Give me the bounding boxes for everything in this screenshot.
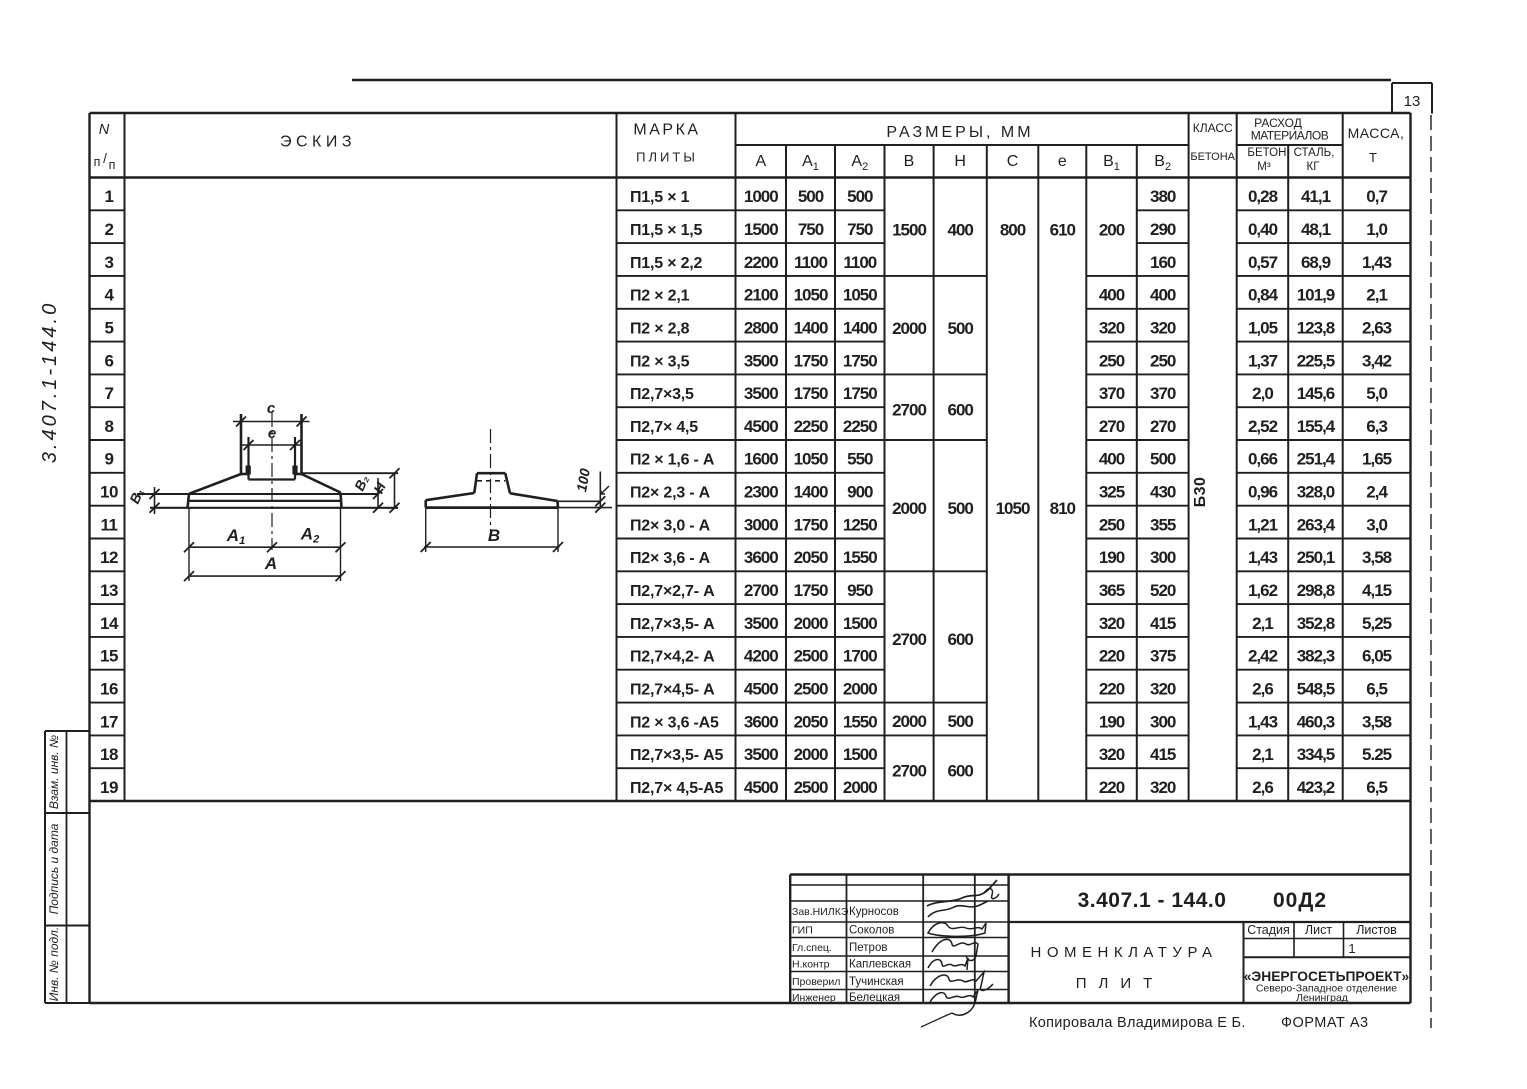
svg-text:2050: 2050 [794,712,828,731]
svg-text:П2× 3,0 - А: П2× 3,0 - А [630,517,711,534]
svg-text:СТАЛЬ,: СТАЛЬ, [1294,147,1335,159]
svg-text:1750: 1750 [794,384,828,403]
svg-text:1050: 1050 [794,286,828,305]
svg-text:Гл.спец.: Гл.спец. [792,942,832,954]
svg-text:П2 × 1,6 - А: П2 × 1,6 - А [630,452,715,469]
svg-text:1500: 1500 [843,745,877,764]
svg-text:В: В [904,153,915,170]
svg-text:Инв. № подл.: Инв. № подл. [47,927,61,1001]
svg-text:2,42: 2,42 [1248,647,1278,666]
svg-text:П2,7×4,5- А: П2,7×4,5- А [630,681,715,698]
svg-text:600: 600 [948,630,974,649]
svg-text:1400: 1400 [843,319,877,338]
svg-text:1050: 1050 [794,450,828,469]
svg-text:2100: 2100 [744,286,778,305]
svg-text:250: 250 [1099,351,1125,370]
svg-text:2,4: 2,4 [1366,483,1388,502]
svg-text:Взам. инв. №: Взам. инв. № [47,735,61,809]
svg-text:Петров: Петров [849,942,887,954]
svg-text:П2× 3,6 - А: П2× 3,6 - А [630,550,711,567]
svg-text:Проверил: Проверил [792,976,840,988]
svg-text:190: 190 [1099,712,1125,731]
svg-text:1,62: 1,62 [1248,581,1278,600]
svg-text:с: с [267,400,276,417]
svg-text:320: 320 [1099,319,1125,338]
svg-text:КЛАСС: КЛАСС [1193,121,1233,135]
svg-text:В1: В1 [1103,153,1120,173]
svg-text:1550: 1550 [843,548,877,567]
svg-text:Тучинская: Тучинская [849,976,904,988]
svg-text:3,58: 3,58 [1362,548,1392,567]
svg-text:п: п [94,155,101,169]
svg-text:4500: 4500 [744,679,778,698]
svg-text:1500: 1500 [744,220,778,239]
svg-text:Б30: Б30 [1192,477,1209,508]
svg-text:2250: 2250 [794,417,828,436]
svg-text:1,37: 1,37 [1248,351,1278,370]
svg-text:3,42: 3,42 [1362,351,1392,370]
svg-text:750: 750 [847,220,873,239]
svg-text:2500: 2500 [794,778,828,797]
svg-text:155,4: 155,4 [1297,417,1336,436]
svg-text:145,6: 145,6 [1297,384,1335,403]
svg-text:328,0: 328,0 [1297,483,1335,502]
svg-text:380: 380 [1150,187,1176,206]
svg-text:00Д2: 00Д2 [1273,889,1327,912]
svg-text:4200: 4200 [744,647,778,666]
svg-text:РАЗМЕРЫ, ММ: РАЗМЕРЫ, ММ [886,124,1033,141]
svg-text:200: 200 [1099,221,1125,240]
svg-text:810: 810 [1050,499,1076,518]
svg-text:6,5: 6,5 [1366,679,1387,698]
svg-text:300: 300 [1150,712,1176,731]
svg-text:270: 270 [1150,417,1176,436]
svg-text:375: 375 [1150,647,1176,666]
svg-text:2,1: 2,1 [1252,614,1273,633]
svg-text:2000: 2000 [892,499,926,518]
svg-text:БЕТОН,: БЕТОН, [1247,147,1289,159]
svg-text:400: 400 [1099,450,1125,469]
svg-text:10: 10 [100,483,118,502]
svg-text:В: В [488,526,500,545]
svg-text:2300: 2300 [744,483,778,502]
svg-text:355: 355 [1150,515,1176,534]
svg-text:2,0: 2,0 [1252,384,1273,403]
svg-text:2000: 2000 [892,712,926,731]
svg-text:500: 500 [948,712,974,731]
svg-text:Каплевская: Каплевская [849,959,911,971]
svg-text:100: 100 [573,467,593,493]
svg-text:НОМЕНКЛАТУРА: НОМЕНКЛАТУРА [1031,944,1218,961]
svg-text:1,05: 1,05 [1248,319,1278,338]
svg-text:1,43: 1,43 [1362,253,1392,272]
svg-text:400: 400 [1099,286,1125,305]
svg-text:Листов: Листов [1356,923,1397,937]
svg-text:П2 × 2,1: П2 × 2,1 [630,288,690,305]
svg-text:Лист: Лист [1305,923,1332,937]
svg-text:500: 500 [1150,450,1176,469]
svg-text:320: 320 [1150,778,1176,797]
svg-text:3600: 3600 [744,548,778,567]
svg-text:МАРКА: МАРКА [633,122,700,139]
svg-text:6,3: 6,3 [1366,417,1387,436]
svg-text:1000: 1000 [744,187,778,206]
svg-text:Подпись и дата: Подпись и дата [47,823,61,914]
svg-text:320: 320 [1099,614,1125,633]
svg-text:А1: А1 [226,526,245,547]
svg-text:1750: 1750 [843,351,877,370]
svg-text:15: 15 [100,647,118,666]
svg-text:Ленинград: Ленинград [1296,992,1348,1004]
svg-text:5: 5 [105,319,114,338]
svg-text:13: 13 [100,581,118,600]
svg-text:290: 290 [1150,220,1176,239]
svg-text:2000: 2000 [794,614,828,633]
svg-text:Курносов: Курносов [849,906,899,918]
svg-text:П1,5 × 1: П1,5 × 1 [630,189,690,206]
svg-text:1050: 1050 [843,286,877,305]
svg-text:А2: А2 [851,153,868,173]
svg-text:1: 1 [105,187,114,206]
svg-text:225,5: 225,5 [1297,351,1335,370]
svg-text:ЭСКИЗ: ЭСКИЗ [280,134,356,151]
svg-text:В₂: В₂ [351,473,372,494]
svg-text:250,1: 250,1 [1297,548,1335,567]
svg-text:Н: Н [954,153,966,170]
svg-text:1: 1 [1348,941,1355,956]
svg-text:520: 520 [1150,581,1176,600]
svg-text:123,8: 123,8 [1297,319,1335,338]
svg-text:1750: 1750 [794,515,828,534]
svg-text:П1,5 × 1,5: П1,5 × 1,5 [630,222,703,239]
svg-text:325: 325 [1099,483,1125,502]
svg-text:2,1: 2,1 [1252,745,1273,764]
svg-text:500: 500 [948,319,974,338]
svg-text:е: е [1058,153,1067,170]
svg-text:365: 365 [1099,581,1125,600]
svg-text:1050: 1050 [996,499,1030,518]
svg-text:2200: 2200 [744,253,778,272]
svg-text:3500: 3500 [744,614,778,633]
svg-text:0,57: 0,57 [1248,253,1278,272]
svg-text:П2,7×3,5: П2,7×3,5 [630,386,694,403]
svg-text:1750: 1750 [794,351,828,370]
svg-text:12: 12 [100,548,118,567]
svg-text:600: 600 [948,761,974,780]
svg-text:3.407.1 - 144.0: 3.407.1 - 144.0 [1078,889,1227,912]
svg-text:2700: 2700 [892,630,926,649]
svg-text:1100: 1100 [794,253,827,272]
svg-text:3.407.1-144.0: 3.407.1-144.0 [39,301,61,463]
svg-text:352,8: 352,8 [1297,614,1335,633]
svg-text:220: 220 [1099,647,1125,666]
svg-text:548,5: 548,5 [1297,679,1335,698]
svg-text:160: 160 [1150,253,1176,272]
svg-text:19: 19 [100,778,118,797]
svg-text:500: 500 [847,187,873,206]
svg-text:БЕТОНА: БЕТОНА [1190,151,1235,163]
svg-text:190: 190 [1099,548,1125,567]
svg-text:П2,7× 4,5-А5: П2,7× 4,5-А5 [630,780,723,797]
svg-text:220: 220 [1099,679,1125,698]
svg-text:610: 610 [1050,221,1076,240]
svg-text:П2,7×4,2- А: П2,7×4,2- А [630,649,715,666]
svg-text:600: 600 [948,401,974,420]
svg-text:251,4: 251,4 [1297,450,1336,469]
svg-text:Зав.НИЛКЭ: Зав.НИЛКЭ [792,906,849,918]
svg-text:С: С [1007,153,1019,170]
svg-text:430: 430 [1150,483,1176,502]
svg-text:А1: А1 [802,153,819,173]
svg-text:ПЛИТЫ: ПЛИТЫ [636,150,698,165]
svg-text:3,58: 3,58 [1362,712,1392,731]
svg-text:2,63: 2,63 [1362,319,1392,338]
svg-text:500: 500 [948,499,974,518]
svg-text:2700: 2700 [892,761,926,780]
svg-text:1,21: 1,21 [1248,515,1278,534]
svg-text:263,4: 263,4 [1297,515,1336,534]
svg-text:400: 400 [1150,286,1176,305]
svg-text:17: 17 [100,712,118,731]
svg-text:3: 3 [105,253,114,272]
svg-text:400: 400 [948,221,974,240]
svg-text:415: 415 [1150,614,1176,633]
svg-text:2000: 2000 [794,745,828,764]
svg-text:13: 13 [1404,93,1421,110]
svg-text:0,66: 0,66 [1248,450,1278,469]
svg-text:П2 × 2,8: П2 × 2,8 [630,321,690,338]
svg-text:370: 370 [1099,384,1125,403]
svg-text:П2× 2,3 - А: П2× 2,3 - А [630,485,711,502]
svg-text:3500: 3500 [744,745,778,764]
svg-text:1,43: 1,43 [1248,548,1278,567]
svg-text:900: 900 [847,483,873,502]
svg-text:4,15: 4,15 [1362,581,1392,600]
svg-text:П2 × 3,5: П2 × 3,5 [630,353,690,370]
svg-text:П1,5 × 2,2: П1,5 × 2,2 [630,255,703,272]
svg-text:0,84: 0,84 [1248,286,1279,305]
svg-text:П2,7×3,5- А: П2,7×3,5- А [630,616,715,633]
svg-text:П2,7×2,7- А: П2,7×2,7- А [630,583,715,600]
svg-text:6,5: 6,5 [1366,778,1387,797]
svg-text:5,0: 5,0 [1366,384,1387,403]
svg-text:В₁: В₁ [126,486,147,506]
svg-text:300: 300 [1150,548,1176,567]
svg-text:0,28: 0,28 [1248,187,1278,206]
svg-text:2000: 2000 [892,319,926,338]
svg-text:П2,7×3,5- А5: П2,7×3,5- А5 [630,747,723,764]
svg-text:1750: 1750 [843,384,877,403]
svg-text:А: А [755,153,766,170]
svg-text:2: 2 [105,220,114,239]
svg-text:0,40: 0,40 [1248,220,1278,239]
svg-text:П2 × 3,6 -А5: П2 × 3,6 -А5 [630,714,719,731]
svg-text:ФОРМАТ А3: ФОРМАТ А3 [1281,1015,1369,1031]
svg-text:370: 370 [1150,384,1176,403]
svg-text:6,05: 6,05 [1362,647,1392,666]
svg-text:/: / [103,151,107,166]
svg-text:1600: 1600 [744,450,778,469]
svg-text:460,3: 460,3 [1297,712,1335,731]
svg-text:3,0: 3,0 [1366,515,1387,534]
svg-text:2000: 2000 [843,778,877,797]
svg-text:950: 950 [847,581,873,600]
svg-text:5,25: 5,25 [1362,614,1392,633]
svg-text:1,0: 1,0 [1366,220,1387,239]
svg-text:2800: 2800 [744,319,778,338]
svg-text:1700: 1700 [843,647,877,666]
svg-text:270: 270 [1099,417,1125,436]
svg-text:Н.контр: Н.контр [792,959,830,971]
svg-text:2500: 2500 [794,679,828,698]
svg-text:2,6: 2,6 [1252,778,1273,797]
svg-text:1250: 1250 [843,515,877,534]
svg-text:0,7: 0,7 [1366,187,1387,206]
svg-text:2000: 2000 [843,679,877,698]
svg-text:2700: 2700 [744,581,778,600]
svg-text:ПЛИТ: ПЛИТ [1076,975,1165,992]
svg-text:1400: 1400 [794,319,828,338]
svg-text:423,2: 423,2 [1297,778,1335,797]
svg-text:МАТЕРИАЛОВ: МАТЕРИАЛОВ [1251,129,1329,143]
svg-text:КГ: КГ [1307,161,1321,173]
svg-text:1750: 1750 [794,581,828,600]
svg-text:1550: 1550 [843,712,877,731]
svg-text:1500: 1500 [892,221,926,240]
svg-text:101,9: 101,9 [1297,286,1335,305]
svg-text:2500: 2500 [794,647,828,666]
svg-text:0,96: 0,96 [1248,483,1278,502]
svg-text:Копировала Владимирова Е Б.: Копировала Владимирова Е Б. [1029,1015,1246,1031]
svg-text:5.25: 5.25 [1362,745,1392,764]
svg-text:3500: 3500 [744,351,778,370]
svg-text:МАССА,: МАССА, [1348,125,1405,141]
svg-text:9: 9 [105,450,114,469]
svg-text:6: 6 [105,351,114,370]
svg-text:П2,7× 4,5: П2,7× 4,5 [630,419,698,436]
svg-text:1400: 1400 [794,483,828,502]
svg-text:N: N [99,122,110,138]
svg-text:4500: 4500 [744,778,778,797]
svg-text:320: 320 [1099,745,1125,764]
svg-text:8: 8 [105,417,114,436]
svg-text:500: 500 [798,187,824,206]
svg-text:3600: 3600 [744,712,778,731]
svg-text:2,6: 2,6 [1252,679,1273,698]
svg-text:ГИП: ГИП [792,925,813,937]
svg-text:48,1: 48,1 [1301,220,1331,239]
svg-text:1500: 1500 [843,614,877,633]
svg-text:Белецкая: Белецкая [849,992,900,1004]
svg-text:800: 800 [1000,221,1026,240]
svg-text:750: 750 [798,220,824,239]
svg-text:68,9: 68,9 [1301,253,1331,272]
svg-text:14: 14 [100,614,119,633]
svg-text:7: 7 [105,384,114,403]
svg-text:п: п [109,158,116,172]
svg-text:250: 250 [1099,515,1125,534]
svg-text:4500: 4500 [744,417,778,436]
svg-text:41,1: 41,1 [1301,187,1331,206]
svg-text:1,65: 1,65 [1362,450,1392,469]
svg-text:3000: 3000 [744,515,778,534]
svg-text:334,5: 334,5 [1297,745,1335,764]
svg-text:16: 16 [100,679,118,698]
svg-text:18: 18 [100,745,118,764]
svg-text:Т: Т [1369,150,1377,165]
svg-text:1,43: 1,43 [1248,712,1278,731]
svg-text:2250: 2250 [843,417,877,436]
svg-text:250: 250 [1150,351,1176,370]
svg-text:4: 4 [105,286,115,305]
svg-text:320: 320 [1150,319,1176,338]
svg-text:2,52: 2,52 [1248,417,1278,436]
svg-text:В2: В2 [1154,153,1171,173]
svg-text:3500: 3500 [744,384,778,403]
svg-text:382,3: 382,3 [1297,647,1335,666]
svg-text:М³: М³ [1257,161,1271,173]
svg-text:550: 550 [847,450,873,469]
svg-text:415: 415 [1150,745,1176,764]
svg-text:А2: А2 [300,525,319,546]
svg-text:Инженер: Инженер [792,992,836,1004]
svg-text:Соколов: Соколов [849,925,894,937]
svg-text:298,8: 298,8 [1297,581,1335,600]
svg-text:А: А [264,554,277,573]
svg-text:320: 320 [1150,679,1176,698]
svg-text:2,1: 2,1 [1366,286,1387,305]
svg-text:2700: 2700 [892,401,926,420]
svg-text:2050: 2050 [794,548,828,567]
svg-text:220: 220 [1099,778,1125,797]
svg-text:11: 11 [101,515,118,534]
svg-text:Стадия: Стадия [1247,923,1290,937]
svg-text:1100: 1100 [843,253,876,272]
